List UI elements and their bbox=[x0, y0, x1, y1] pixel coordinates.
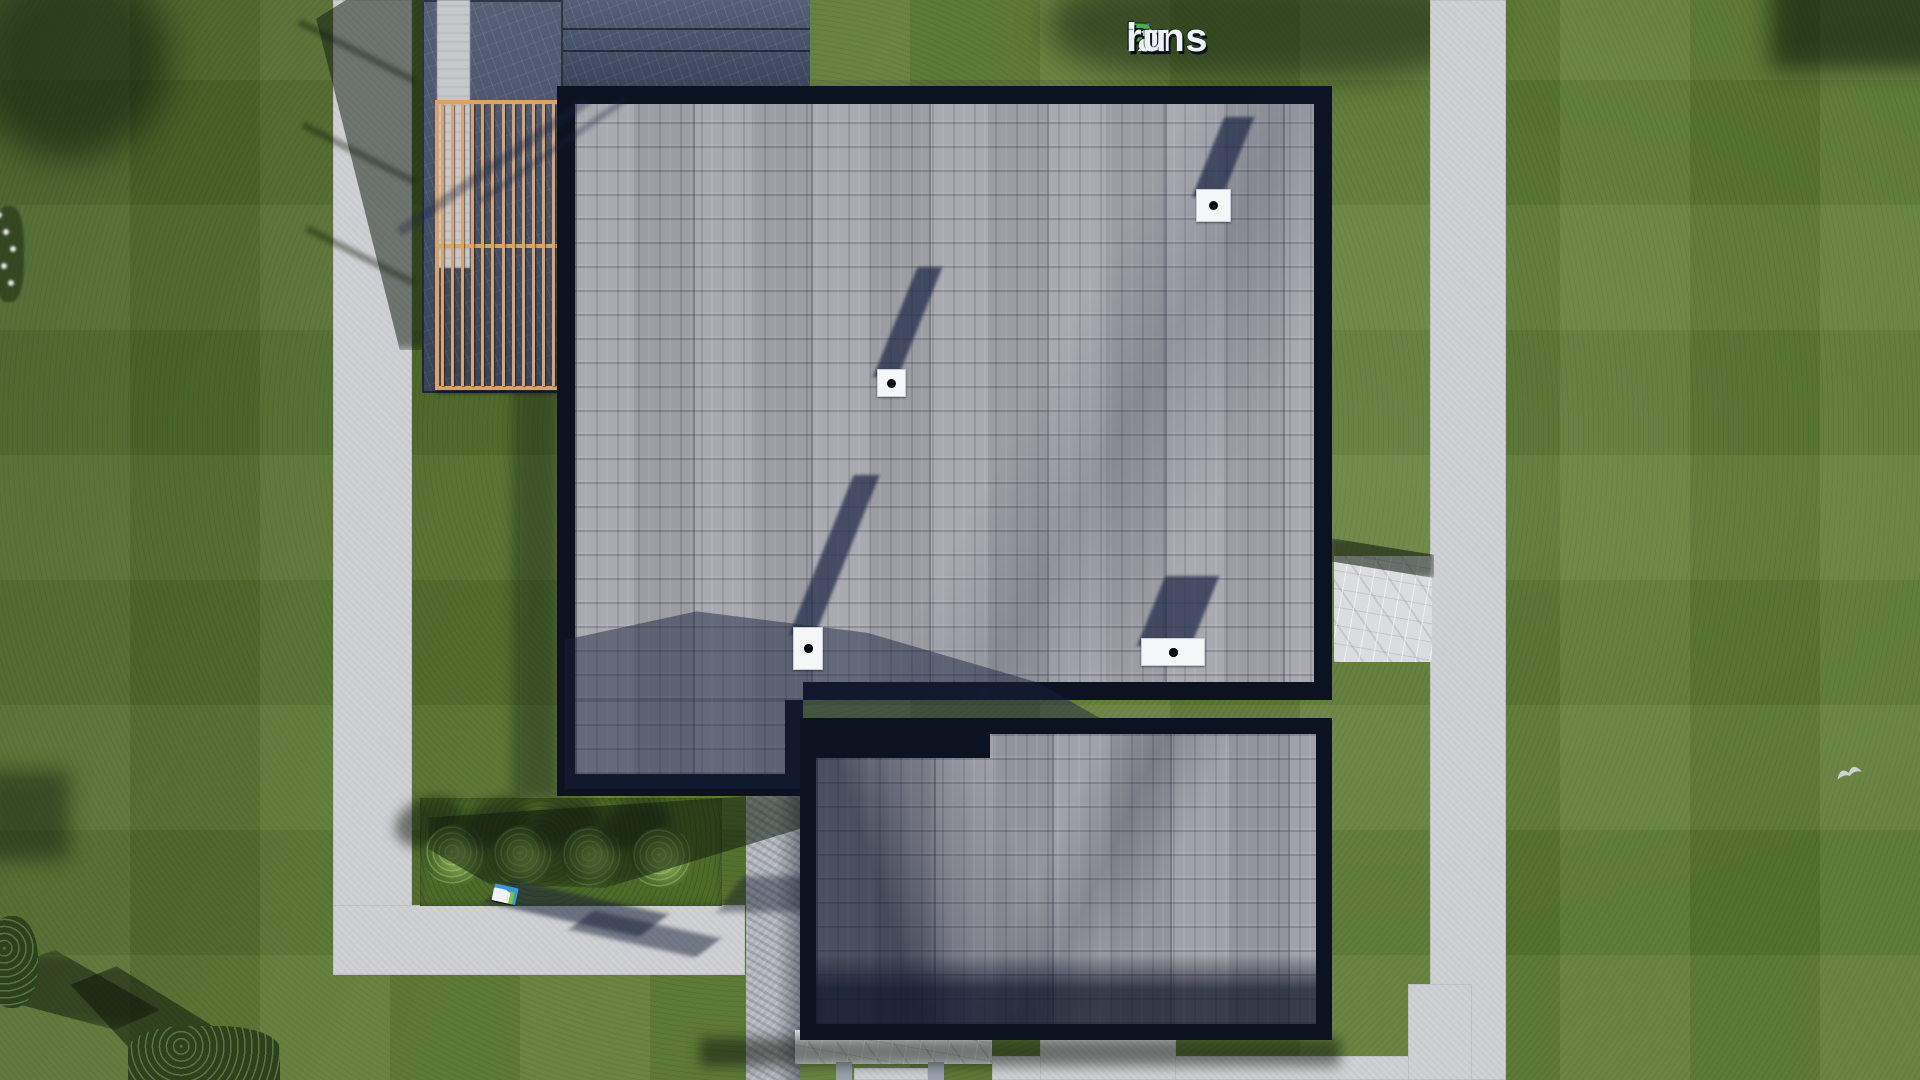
flower bbox=[0, 212, 2, 218]
path-connector bbox=[1408, 984, 1472, 1080]
pergola-slat bbox=[481, 104, 484, 386]
wing-shingles bbox=[575, 700, 785, 774]
flower bbox=[1, 263, 7, 269]
vent-4 bbox=[1141, 638, 1205, 666]
pergola-slat bbox=[542, 104, 545, 386]
vent-hole bbox=[1169, 648, 1178, 657]
pergola-mid-rail bbox=[439, 244, 557, 248]
vent-hole bbox=[887, 379, 896, 388]
pergola-slat bbox=[441, 104, 444, 386]
extension-shingles bbox=[816, 734, 1316, 1024]
tree-bottom bbox=[128, 1026, 280, 1080]
vent-3 bbox=[793, 627, 823, 670]
main-roof-wing bbox=[557, 700, 803, 796]
pergola-slat bbox=[471, 104, 474, 386]
tree-shadow-behind-logo bbox=[1050, 0, 1490, 80]
grass-dark-patch-left bbox=[0, 770, 70, 860]
logo-segment: ru bbox=[1126, 16, 1167, 61]
walkway bbox=[746, 795, 800, 1080]
extension-roof bbox=[800, 718, 1332, 1040]
step-stub-left bbox=[836, 1062, 852, 1080]
pergola-frame bbox=[435, 100, 561, 390]
step-stub-right bbox=[928, 1062, 944, 1080]
white-flowers bbox=[0, 206, 24, 302]
vent-hole bbox=[1209, 201, 1218, 210]
flower bbox=[3, 229, 9, 235]
extension-roof-shadow bbox=[816, 734, 1316, 1024]
pergola-slat bbox=[451, 104, 454, 386]
bush bbox=[631, 827, 693, 889]
patio-right bbox=[1334, 556, 1432, 662]
tree-shadow-top-right bbox=[1770, 0, 1920, 70]
extension-step-parapet bbox=[800, 718, 990, 758]
vent-2 bbox=[877, 369, 906, 397]
pergola-slat bbox=[491, 104, 494, 386]
aerial-render: FixPlans.ru bbox=[0, 0, 1920, 1080]
flower bbox=[10, 246, 16, 252]
vent-hole bbox=[804, 644, 813, 653]
path-right bbox=[1430, 0, 1506, 1080]
pergola-slat bbox=[532, 104, 535, 386]
pergola-slat bbox=[461, 104, 464, 386]
flower bbox=[8, 280, 14, 286]
pergola-slat bbox=[502, 104, 505, 386]
step-slab bbox=[854, 1068, 928, 1080]
vent-1 bbox=[1196, 189, 1231, 222]
